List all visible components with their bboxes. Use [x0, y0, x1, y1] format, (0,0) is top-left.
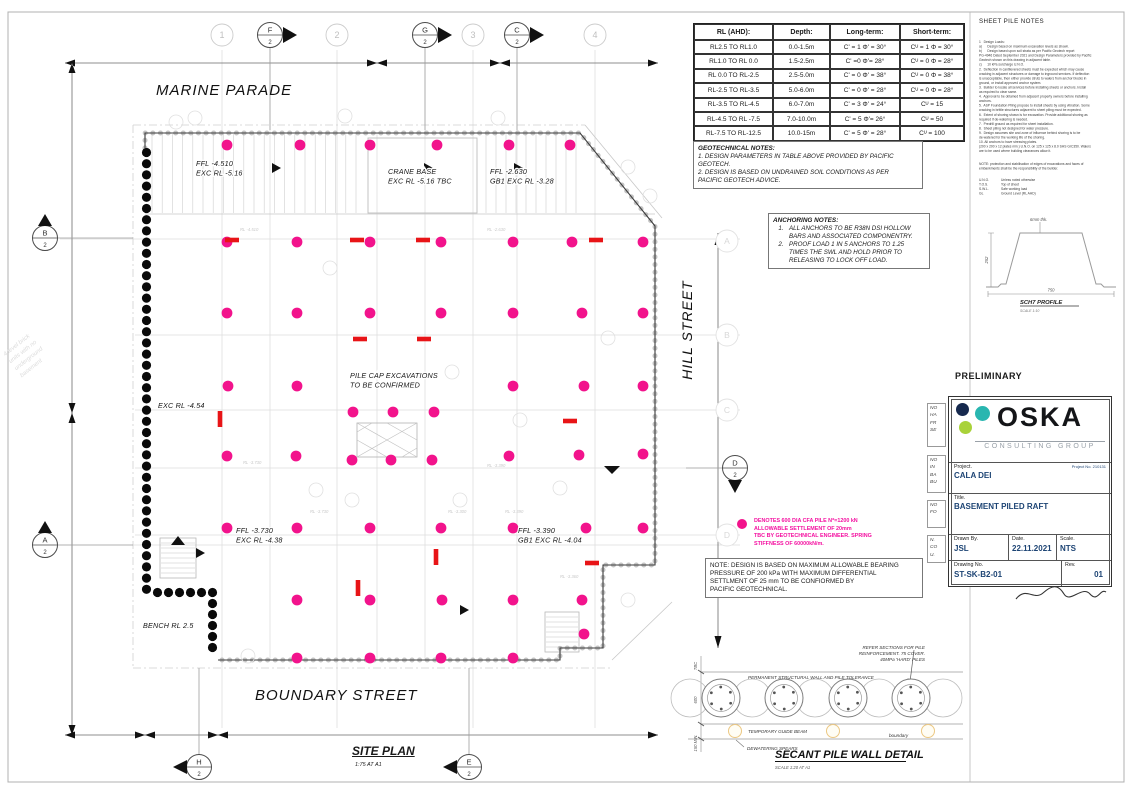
- bubble-label: D: [724, 530, 730, 540]
- logo-subtitle: CONSULTING GROUP: [975, 443, 1105, 450]
- secant-pile-dot: [142, 238, 151, 247]
- bubble-label: C: [724, 405, 730, 415]
- plan-label: EXC RL -4.38: [236, 536, 283, 545]
- dimension-lines: [65, 63, 718, 735]
- ghost-circle: [513, 413, 527, 427]
- street-name-boundary: BOUNDARY STREET: [255, 687, 418, 704]
- plan-label: EXC RL -4.54: [158, 401, 205, 410]
- cfa-pile-marker: [292, 381, 303, 392]
- cfa-pile-marker: [436, 237, 447, 248]
- anchor-plate-h: [350, 238, 364, 243]
- rebar-dot: [919, 691, 922, 694]
- rebar-dot: [910, 708, 913, 711]
- bubble-label: B: [724, 330, 730, 340]
- abbreviation: GL: [979, 192, 1001, 197]
- plan-label: FFL -3.390: [518, 526, 555, 535]
- secant-pile-dot: [142, 193, 151, 202]
- secant-pile-dot: [142, 148, 151, 157]
- preliminary-stamp: PRELIMINARY: [955, 371, 1022, 381]
- cfa-pile-marker: [581, 523, 592, 534]
- rebar-dot: [710, 702, 713, 705]
- secant-pile-dot: [142, 506, 151, 515]
- cfa-pile-marker: [365, 308, 376, 319]
- table-cell: Cᵁ = 50: [900, 112, 964, 126]
- plan-label: GB1 EXC RL -3.28: [490, 177, 554, 186]
- secant-pile-dot: [142, 417, 151, 426]
- cfa-pile-marker: [638, 381, 649, 392]
- refer-note: REFER SECTIONS FOR PILEREINFORCEMENT. 75…: [859, 645, 926, 662]
- geotech-note-line: 1. DESIGN PARAMETERS IN TABLE ABOVE PROV…: [698, 153, 918, 161]
- secant-pile-dot: [142, 350, 151, 359]
- section-arrow: [728, 480, 742, 493]
- rev-label: Rev.: [1065, 562, 1076, 568]
- dewatering-spear-circle: [729, 725, 742, 738]
- dimension-arrows: [65, 60, 722, 739]
- table-cell: Cᵁ = 0 Φ = 28°: [900, 54, 964, 68]
- table-cell: C' = 0 Φ' = 38°: [830, 69, 900, 83]
- bubble-label: A: [724, 236, 730, 246]
- guide-beam-label: TEMPORARY GUIDE BEAM: [748, 729, 807, 734]
- secant-pile-dot: [186, 588, 195, 597]
- pile-legend-text: DENOTES 600 DIA CFA PILE N*=1200 kN ALLO…: [754, 518, 872, 548]
- sch7-width-dim: 750: [1048, 288, 1056, 293]
- date-value: 22.11.2021: [1012, 544, 1052, 553]
- secant-pile-dot: [208, 599, 217, 608]
- cfa-pile-marker: [508, 381, 519, 392]
- anchoring-notes-title: ANCHORING NOTES:: [773, 217, 925, 225]
- refer-note-line: REFER SECTIONS FOR PILE: [862, 645, 925, 650]
- secant-pile-dot: [142, 574, 151, 583]
- anchor-plate-v: [218, 411, 223, 427]
- rebar-dot: [729, 702, 732, 705]
- table-cell: Cᵁ = 15: [900, 98, 964, 112]
- cfa-pile-marker: [386, 455, 397, 466]
- rebar-dot: [856, 691, 859, 694]
- table-cell: RL2.5 TO RL1.0: [694, 40, 773, 54]
- secant-pile-wall-dots: [142, 148, 217, 652]
- abbreviation-row: GLGround Level (RL AHD): [979, 192, 1129, 197]
- geotech-notes-lines: 1. DESIGN PARAMETERS IN TABLE ABOVE PROV…: [698, 153, 918, 185]
- refer-note-line: REINFORCEMENT. 75 COVER.: [859, 651, 925, 656]
- cfa-pile-marker: [348, 407, 359, 418]
- tb-line: [1008, 534, 1009, 560]
- bubble-label: C: [514, 26, 520, 35]
- faint-rl-label: RL -3.300: [448, 509, 467, 514]
- street-name-hill: HILL STREET: [679, 280, 695, 380]
- faint-rl-label: RL -2.630: [487, 227, 506, 232]
- table-cell: RL-4.5 TO RL -7.5: [694, 112, 773, 126]
- cfa-pile-marker: [579, 629, 590, 640]
- secant-pile-dot: [142, 394, 151, 403]
- site-boundary-dashed: [133, 125, 612, 668]
- cfa-pile-marker: [565, 140, 576, 151]
- geotech-note-line: GEOTECH.: [698, 161, 918, 169]
- secant-pile-dot: [142, 540, 151, 549]
- table-cell: Cᵁ = 1 Φ = 30°: [900, 40, 964, 54]
- excavation-wall-outline: [145, 133, 655, 660]
- drawn-by-value: JSL: [954, 544, 969, 553]
- cfa-pile-marker: [222, 523, 233, 534]
- cfa-pile-marker: [365, 237, 376, 248]
- cfa-pile-marker: [437, 595, 448, 606]
- table-cell: Cᵁ = 0 Φ = 28°: [900, 83, 964, 97]
- rebar-dot: [720, 708, 723, 711]
- table-row: RL-3.5 TO RL-4.56.0-7.0mC' = 3 Φ' = 24°C…: [694, 98, 964, 112]
- ghost-circle: [241, 649, 255, 663]
- clipped-note-stub: NOHAFRSE: [927, 403, 946, 447]
- secant-pile-dot: [142, 562, 151, 571]
- secant-pile-dot: [142, 249, 151, 258]
- rebar-dot: [919, 702, 922, 705]
- ghost-circle: [188, 111, 202, 125]
- plan-label: EXC RL -5.16: [196, 169, 243, 178]
- cfa-pile-marker: [295, 140, 306, 151]
- geotech-note-line: 2. DESIGN IS BASED ON UNDRAINED SOIL CON…: [698, 169, 918, 177]
- rebar-dot: [856, 702, 859, 705]
- cfa-pile-marker: [508, 237, 519, 248]
- drawing-no-label: Drawing No.: [954, 562, 983, 568]
- signature: [1016, 587, 1106, 599]
- refer-note-line: 40MPa 'HARD' PILES: [880, 657, 926, 662]
- secant-pile-dot: [208, 610, 217, 619]
- item-text: PROOF LOAD 1 IN 5 ANCHORS TO 1.25TIMES T…: [789, 241, 904, 265]
- secant-pile-dot: [142, 439, 151, 448]
- rebar-dot: [783, 708, 786, 711]
- anchor-plate-v: [356, 580, 361, 596]
- cfa-pile-marker: [574, 450, 585, 461]
- sheet-pile-notes-text: 1 Design Loads:a) Design based on maximu…: [979, 40, 1129, 154]
- bubble-label: 3: [470, 30, 475, 40]
- secant-pile-dot: [142, 282, 151, 291]
- anchoring-note-item: 1.ALL ANCHORS TO BE R38N DSI HOLLOWBARS …: [773, 225, 925, 241]
- bubble-label: A: [42, 536, 47, 545]
- ghost-circle: [445, 365, 459, 379]
- table-cell: 0.0-1.5m: [773, 40, 830, 54]
- project-value: CALA DEI: [954, 471, 991, 480]
- secant-pile-dot: [142, 450, 151, 459]
- geotech-notes-title: GEOTECHNICAL NOTES:: [698, 145, 918, 153]
- cfa-pile-marker: [365, 595, 376, 606]
- bearing-note-line: SETTLMENT OF 25 mm TO BE CONFIORMED BY: [710, 578, 918, 586]
- sheet-pile-scallops: [145, 133, 655, 660]
- secant-pile-dot: [142, 305, 151, 314]
- tb-line: [949, 462, 1111, 463]
- sheet-pile-abbreviations: U.N.O.Unless noted otherwiseT.O.S.Top of…: [979, 178, 1129, 196]
- detail-dim-text: TBC: [693, 661, 698, 670]
- secant-pile-dot: [142, 372, 151, 381]
- secant-pile-wall-detail: PERMANENT STRUCTURAL WALL AND PILE TOLER…: [671, 645, 963, 770]
- sheet-pile-notes-title: SHEET PILE NOTES: [979, 18, 1044, 25]
- rebar-dot: [792, 702, 795, 705]
- plan-label: PILE CAP EXCAVATIONS: [350, 371, 438, 380]
- perm-wall-label: PERMANENT STRUCTURAL WALL AND PILE TOLER…: [748, 675, 875, 680]
- faint-rl-label: RL -3.360: [560, 574, 579, 579]
- item-text: ALL ANCHORS TO BE R38N DSI HOLLOWBARS AN…: [789, 225, 913, 241]
- ghost-circle: [621, 160, 635, 174]
- pile-legend-dot: [737, 519, 747, 529]
- geotech-note-line: PACIFIC GEOTECH ADVICE.: [698, 177, 918, 185]
- secant-pile-dot: [142, 529, 151, 538]
- ghost-circle: [643, 189, 657, 203]
- secant-pile-dot: [142, 260, 151, 269]
- clipped-note-stub: NOFO: [927, 500, 946, 528]
- table-cell: C' = 5 Φ' = 28°: [830, 126, 900, 140]
- plan-label: TO BE CONFIRMED: [350, 381, 420, 390]
- table-row: RL-4.5 TO RL -7.57.0-10.0mC' = 5 Φ'= 26°…: [694, 112, 964, 126]
- secant-pile-dot: [142, 462, 151, 471]
- soil-parameters-table: RL (AHD):Depth:Long-term:Short-term:RL2.…: [693, 23, 965, 142]
- bubble-label: 1: [219, 30, 224, 40]
- ghost-circle: [601, 331, 615, 345]
- table-header-cell: Depth:: [773, 24, 830, 40]
- anchor-plate-h: [416, 238, 430, 243]
- cfa-pile-marker: [638, 449, 649, 460]
- secant-pile-dot: [164, 588, 173, 597]
- table-cell: RL 0.0 TO RL-2.5: [694, 69, 773, 83]
- tb-line: [1056, 534, 1057, 560]
- table-cell: C' = 3 Φ' = 24°: [830, 98, 900, 112]
- tb-line: [949, 560, 1111, 561]
- table-cell: RL-2.5 TO RL-3.5: [694, 83, 773, 97]
- table-cell: 7.0-10.0m: [773, 112, 830, 126]
- table-cell: 6.0-7.0m: [773, 98, 830, 112]
- cfa-pile-marker: [567, 237, 578, 248]
- cfa-pile-marker: [508, 653, 519, 664]
- rebar-dot: [773, 691, 776, 694]
- rebar-dot: [909, 686, 912, 689]
- pile-cap-hatch: [357, 423, 417, 457]
- secant-pile-dot: [142, 159, 151, 168]
- cfa-pile-marker: [436, 653, 447, 664]
- clipped-note-stub: NOINBABU: [927, 455, 946, 493]
- secant-pile-dot: [208, 588, 217, 597]
- ghost-circle: [345, 493, 359, 507]
- plan-labels: FFL -4.510EXC RL -5.16CRANE BASEEXC RL -…: [143, 159, 582, 630]
- anchor-plate-h: [353, 337, 367, 342]
- secant-pile-dot: [208, 632, 217, 641]
- secant-pile-dot: [208, 621, 217, 630]
- bearing-note-box: NOTE: DESIGN IS BASED ON MAXIMUM ALLOWAB…: [705, 558, 923, 598]
- sch7-thickness-label: 6mm thk.: [1030, 217, 1047, 222]
- cfa-pile-marker: [504, 140, 515, 151]
- interior-lines: [145, 125, 672, 660]
- cfa-pile-marker: [292, 523, 303, 534]
- table-cell: C' = 0 Φ' = 28°: [830, 83, 900, 97]
- rebar-dot: [900, 702, 903, 705]
- dewatering-spear-circle: [827, 725, 840, 738]
- table-header-row: RL (AHD):Depth:Long-term:Short-term:: [694, 24, 964, 40]
- table-header-cell: Long-term:: [830, 24, 900, 40]
- section-arrow: [283, 27, 297, 43]
- cfa-pile-marker: [436, 308, 447, 319]
- sch7-title: SCH7 PROFILE: [1020, 300, 1063, 306]
- secant-pile-dot: [142, 316, 151, 325]
- table-cell: Cᵁ = 0 Φ = 38°: [900, 69, 964, 83]
- detail-scale: SCALE 1:20 AT A1: [775, 765, 810, 770]
- plan-label: FFL -2.630: [490, 167, 527, 176]
- plan-label: EXC RL -5.16 TBC: [388, 177, 452, 186]
- drawing-sheet: RL -4.510RL -2.630RL -3.730RL -3.730RL -…: [0, 0, 1132, 800]
- table-cell: 10.0-15m: [773, 126, 830, 140]
- cfa-pile-marker: [638, 237, 649, 248]
- table-cell: C' =0 Φ'= 28°: [830, 54, 900, 68]
- cfa-pile-marker: [365, 140, 376, 151]
- faint-rl-label: RL -3.390: [487, 463, 506, 468]
- table-row: RL 0.0 TO RL-2.52.5-5.0mC' = 0 Φ' = 38°C…: [694, 69, 964, 83]
- anchor-plate-h: [589, 238, 603, 243]
- title-value: BASEMENT PILED RAFT: [954, 502, 1048, 511]
- spears-leader: [736, 740, 744, 747]
- detail-dim-texts: TBC600150 MIN.: [693, 661, 698, 752]
- section-arrow: [38, 521, 52, 533]
- secant-pile-dot: [142, 406, 151, 415]
- item-number: 2.: [773, 241, 789, 265]
- project-label: Project.: [954, 464, 972, 470]
- secant-pile-dot: [142, 170, 151, 179]
- table-header-cell: Short-term:: [900, 24, 964, 40]
- section-arrow: [443, 760, 457, 774]
- table-cell: RL1.0 TO RL 0.0: [694, 54, 773, 68]
- secant-pile-dot: [142, 383, 151, 392]
- cfa-pile-marker: [638, 523, 649, 534]
- sheet-pile-note-line: are to be used where building clearances…: [979, 149, 1129, 154]
- section-arrow: [438, 27, 452, 43]
- faint-rl-label: RL -4.510: [240, 227, 259, 232]
- site-plan-title: SITE PLAN: [352, 744, 415, 758]
- logo-dot-navy: [956, 403, 969, 416]
- bubble-label: B: [42, 229, 47, 238]
- tb-line: [1061, 560, 1062, 586]
- sch7-profile-shape: [986, 233, 1116, 287]
- secant-pile-dot: [142, 473, 151, 482]
- rebar-dot: [729, 691, 732, 694]
- secant-pile-dot: [142, 182, 151, 191]
- bubble-label: 4: [592, 30, 597, 40]
- table-header-cell: RL (AHD):: [694, 24, 773, 40]
- secant-pile-dot: [142, 204, 151, 213]
- cfa-pile-marker: [577, 308, 588, 319]
- ghost-circle: [553, 481, 567, 495]
- cfa-pile-marker: [222, 308, 233, 319]
- drawn-by-label: Drawn By.: [954, 536, 978, 542]
- table-row: RL2.5 TO RL1.00.0-1.5mC' = 1 Φ' = 30°Cᵁ …: [694, 40, 964, 54]
- rebar-dot: [837, 702, 840, 705]
- anchor-plate-v: [434, 549, 439, 565]
- ghost-circle: [323, 261, 337, 275]
- ghost-circle: [491, 111, 505, 125]
- cfa-pile-marker: [388, 407, 399, 418]
- cfa-pile-marker: [291, 451, 302, 462]
- interior-linework: [145, 125, 672, 660]
- grid-bubbles: 1F22G23C24B2A2ABCD2DH2E2: [33, 23, 748, 780]
- cfa-pile-marker: [504, 451, 515, 462]
- rebar-dot: [710, 691, 713, 694]
- detail-dim-text: 150 MIN.: [693, 735, 698, 752]
- site-plan-scale: 1:75 AT A1: [355, 762, 382, 768]
- anchor-plate-h: [563, 419, 577, 424]
- anchor-plate-h: [225, 238, 239, 243]
- secant-pile-dot: [142, 338, 151, 347]
- cfa-pile-marker: [223, 381, 234, 392]
- anchor-plate-h: [417, 337, 431, 342]
- cfa-pile-marker: [292, 653, 303, 664]
- cfa-pile-marker: [427, 455, 438, 466]
- title-block: OSKA CONSULTING GROUP Project. Project N…: [948, 396, 1112, 587]
- rebar-dot: [846, 686, 849, 689]
- ghost-circle: [453, 493, 467, 507]
- abbreviation-meaning: Ground Level (RL AHD): [1001, 192, 1036, 197]
- sch7-profile-detail: 6mm thk. 252 750 SCH7 PROFILE SCALE 1:10: [984, 217, 1116, 313]
- cfa-pile-marker: [508, 523, 519, 534]
- plan-label: GB1 EXC RL -4.04: [518, 536, 582, 545]
- anchoring-notes-box: ANCHORING NOTES: 1.ALL ANCHORS TO BE R38…: [768, 213, 930, 269]
- bubble-label: D: [732, 459, 738, 468]
- table-row: RL-7.5 TO RL-12.510.0-15mC' = 5 Φ' = 28°…: [694, 126, 964, 140]
- rebar-dot: [837, 691, 840, 694]
- drawing-no-value: ST-SK-B2-01: [954, 570, 1002, 579]
- cfa-pile-marker: [365, 653, 376, 664]
- cfa-pile-marker: [222, 140, 233, 151]
- rebar-dot: [782, 686, 785, 689]
- plan-label: BENCH RL 2.5: [143, 621, 194, 630]
- rebar-dot: [719, 686, 722, 689]
- bearing-note-line: PRESSURE OF 200 kPa WITH MAXIMUM DIFFERE…: [710, 570, 918, 578]
- table-cell: 1.5-2.5m: [773, 54, 830, 68]
- secant-pile-dot: [142, 518, 151, 527]
- faint-rl-label: RL -3.390: [505, 509, 524, 514]
- geotechnical-notes-box: GEOTECHNICAL NOTES: 1. DESIGN PARAMETERS…: [693, 141, 923, 189]
- cfa-pile-marker: [347, 455, 358, 466]
- secant-pile-dot: [142, 215, 151, 224]
- secant-pile-dot: [142, 495, 151, 504]
- logo-dot-lime: [959, 421, 972, 434]
- anchoring-notes-items: 1.ALL ANCHORS TO BE R38N DSI HOLLOWBARS …: [773, 225, 925, 265]
- secant-pile-dot: [142, 327, 151, 336]
- date-label: Date.: [1012, 536, 1025, 542]
- cfa-pile-marker: [222, 451, 233, 462]
- logo-divider: [975, 441, 1105, 442]
- cfa-pile-marker: [432, 140, 443, 151]
- table-cell: C' = 1 Φ' = 30°: [830, 40, 900, 54]
- secant-pile-dot: [142, 226, 151, 235]
- title-label: Title.: [954, 495, 965, 501]
- rebar-dot: [773, 702, 776, 705]
- table-cell: RL-7.5 TO RL-12.5: [694, 126, 773, 140]
- plan-label: FFL -3.730: [236, 526, 273, 535]
- cfa-pile-marker: [436, 523, 447, 534]
- table-cell: RL-3.5 TO RL-4.5: [694, 98, 773, 112]
- tb-line: [949, 534, 1111, 535]
- sch7-height-dim: 252: [984, 256, 989, 265]
- rebar-dot: [792, 691, 795, 694]
- secant-pile-dot: [175, 588, 184, 597]
- tb-line: [949, 493, 1111, 494]
- ghost-circle: [621, 593, 635, 607]
- bearing-note-line: NOTE: DESIGN IS BASED ON MAXIMUM ALLOWAB…: [710, 562, 918, 570]
- cfa-pile-marker: [577, 595, 588, 606]
- table-cell: 5.0-6.0m: [773, 83, 830, 97]
- detail-title: SECANT PILE WALL DETAIL: [775, 749, 924, 761]
- sheet-pile-note-line: embankments shall be the responsibility …: [979, 167, 1129, 172]
- section-arrow: [173, 760, 187, 774]
- logo-wordmark: OSKA: [975, 402, 1105, 433]
- bubble-label: F: [268, 26, 273, 35]
- secant-pile-dot: [153, 588, 162, 597]
- secant-pile-dot: [142, 551, 151, 560]
- cfa-pile-marker: [638, 308, 649, 319]
- street-name-marine: MARINE PARADE: [156, 82, 292, 99]
- faint-rl-label: RL -3.730: [243, 460, 262, 465]
